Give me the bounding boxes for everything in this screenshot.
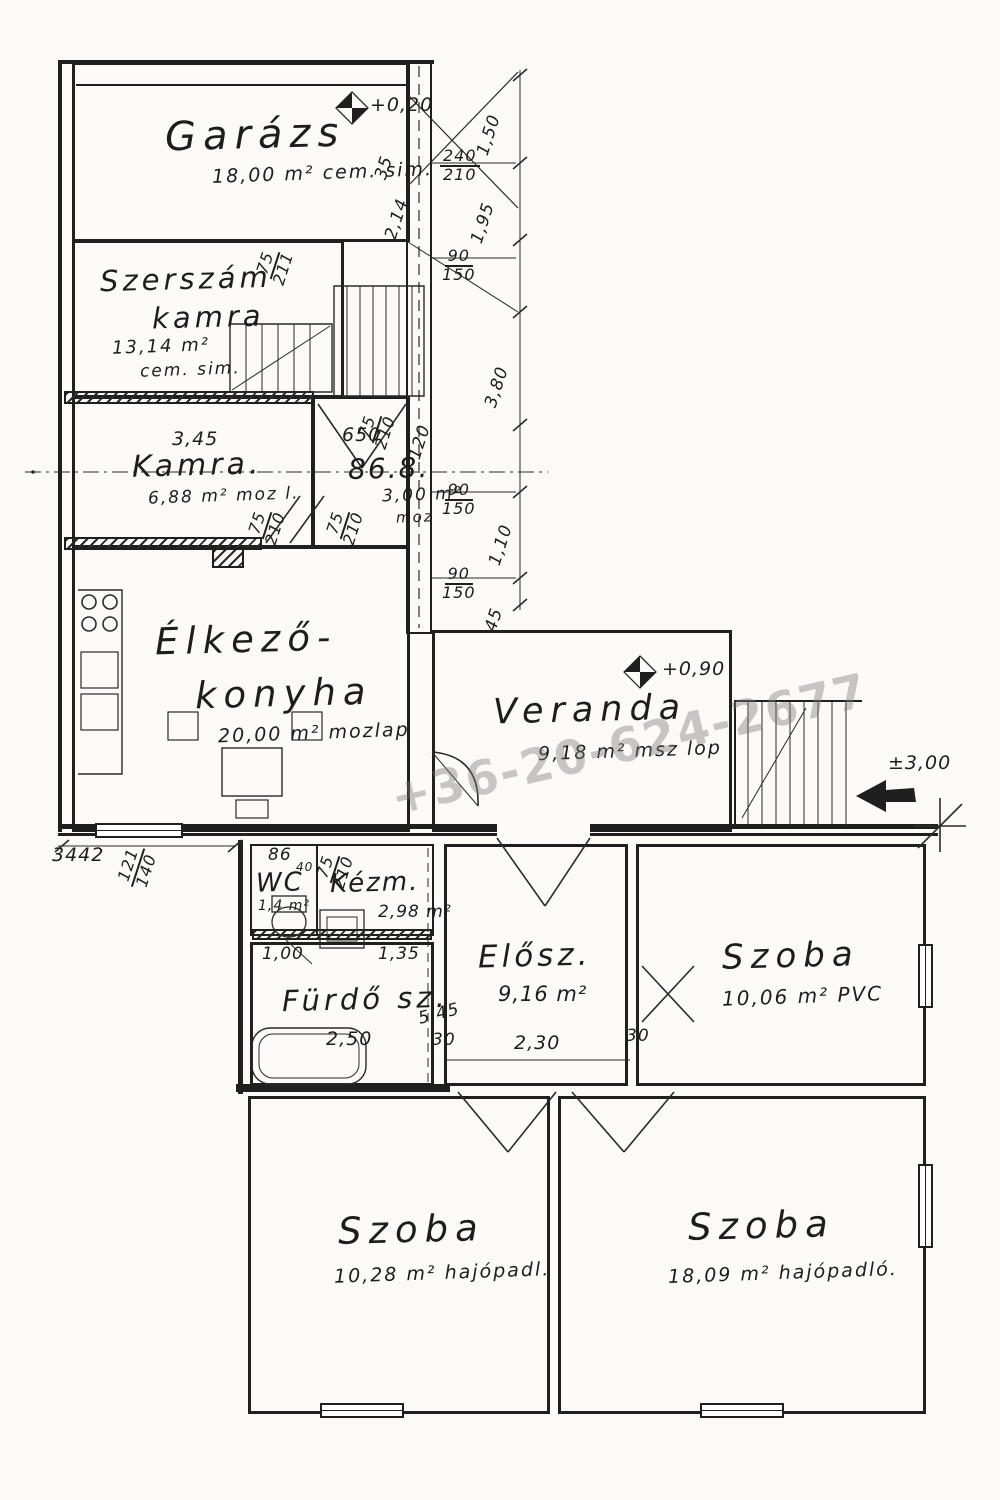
label-entryhall-area: 9,16 m²	[498, 982, 587, 1006]
label-bedroom2: Szoba	[337, 1206, 485, 1253]
level-entry: ±3,00	[888, 752, 951, 774]
label-kitchen-2: konyha	[194, 670, 373, 718]
dim-3442: 3442	[52, 844, 104, 866]
label-kitchen-1: Élkező-	[154, 616, 337, 664]
floor-plan-canvas: Garázs 18,00 m² cem. sim. Szerszám kamra…	[0, 0, 1000, 1500]
label-toolshed-2: kamra	[152, 299, 265, 336]
label-handwash-area: 2,98 m²	[378, 902, 452, 922]
level-garage: +0,20	[370, 94, 433, 116]
dim-window-90-150-b: 90150	[442, 482, 476, 518]
label-hall-floor: moz	[396, 507, 434, 526]
dim-86: 86	[268, 845, 292, 865]
label-entryhall: Elősz.	[478, 937, 592, 976]
dim-window-90-150-c: 90150	[442, 566, 476, 602]
label-toolshed-1: Szerszám	[100, 260, 273, 298]
label-wc-area: 1,4 m²	[258, 898, 310, 914]
dim-bathroom-width: 2,50	[326, 1028, 372, 1050]
label-toolshed-area: 13,14 m²	[112, 334, 211, 358]
dim-garage-door: 240210	[440, 148, 480, 184]
dim-window-90-150-a: 90150	[442, 248, 476, 284]
label-pantry: Kamra.	[132, 446, 263, 484]
level-veranda: +0,90	[662, 658, 725, 680]
dim-135: 1,35	[378, 944, 420, 964]
dim-100: 1,00	[262, 944, 304, 964]
label-bedroom1: Szoba	[722, 934, 861, 978]
label-bedroom3: Szoba	[687, 1202, 835, 1249]
label-wc-note: 40	[296, 860, 313, 874]
label-garage: Garázs	[164, 110, 345, 161]
dim-30b: 30	[626, 1026, 650, 1046]
label-toolshed-floor: cem. sim.	[140, 358, 241, 382]
dim-345: 3,45	[172, 428, 218, 450]
dim-30a: 30	[432, 1030, 456, 1050]
dim-entryhall-width: 2,30	[514, 1032, 560, 1054]
